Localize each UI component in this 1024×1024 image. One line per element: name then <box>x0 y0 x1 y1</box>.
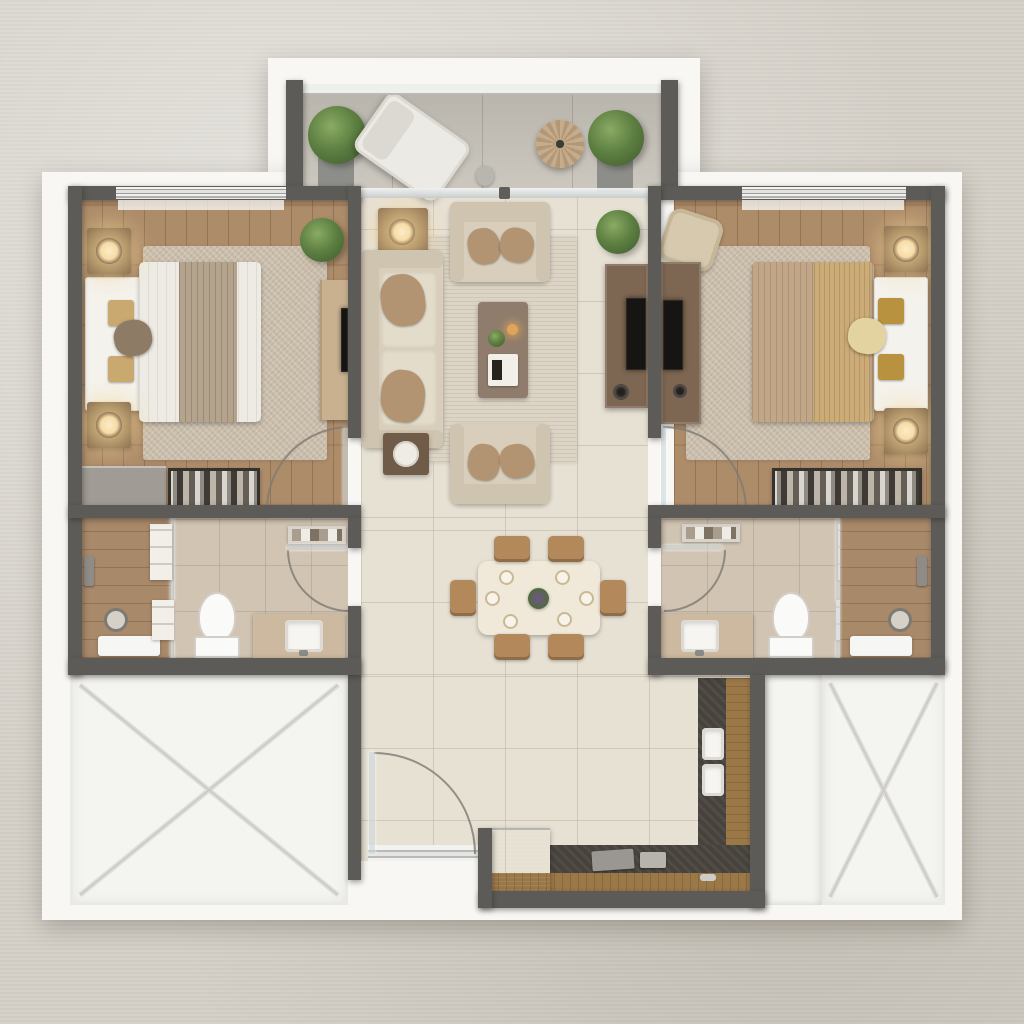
bedroom-right-lamp-top <box>893 236 919 262</box>
living-armchair-bottom <box>450 424 550 504</box>
bathroom-right-glass-partition <box>836 518 840 658</box>
bedroom-left-lamp-bottom <box>96 412 122 438</box>
void-area-left <box>70 675 348 905</box>
sofa-arm-top <box>361 250 443 268</box>
kitchen-appliance <box>492 828 550 894</box>
living-tv <box>626 298 646 370</box>
place-setting-1 <box>499 570 514 585</box>
wall-bath-left-bottom <box>68 658 361 675</box>
void-cross-right <box>822 675 945 905</box>
balcony-wall-right <box>661 80 678 192</box>
bedroom-right-nightstand-bottom <box>884 408 928 454</box>
armchair-top-pillow-2 <box>497 225 537 265</box>
place-setting-3 <box>485 591 500 606</box>
bathroom-right-shower-control <box>888 608 912 632</box>
sliding-door-handle <box>499 187 510 199</box>
armchair-bottom-arm-left <box>450 424 464 504</box>
armchair-top-arm-right <box>536 202 550 282</box>
bedroom-left-dresser <box>82 466 166 508</box>
living-table-lamp <box>389 219 415 245</box>
wall-kitchen-left-stub <box>478 828 492 908</box>
bathroom-left-faucet <box>299 650 308 656</box>
wall-bedroom-right-inner <box>648 186 661 438</box>
balcony-round-table <box>536 120 584 168</box>
bathroom-left-sink <box>285 620 323 652</box>
entry-outside-patch <box>361 861 478 920</box>
wall-bedroom-left-bottom <box>68 505 361 518</box>
bedroom-right-speaker <box>673 384 687 398</box>
wall-bedroom-right-bottom <box>648 505 945 518</box>
bedroom-left-lamp-top <box>96 238 122 264</box>
bathroom-left-towels <box>292 529 342 541</box>
place-setting-2 <box>555 570 570 585</box>
armchair-top-arm-left <box>450 202 464 282</box>
place-setting-6 <box>557 612 572 627</box>
living-side-table-bottom <box>383 433 429 475</box>
wall-kitchen-right <box>750 675 765 908</box>
armchair-bottom-pillow-2 <box>497 441 537 481</box>
bathroom-right-shower-tray <box>850 636 912 656</box>
dining-chair-bottom-1 <box>494 634 530 660</box>
white-strip-right <box>765 675 822 905</box>
dining-chair-right <box>600 580 626 616</box>
balcony-wall-left <box>286 80 303 192</box>
bathroom-right-shower-head <box>917 556 927 586</box>
bedroom-left-door-leaf <box>343 428 348 510</box>
coffee-table-candle <box>507 324 518 335</box>
dining-chair-top-2 <box>548 536 584 562</box>
bathroom-left-toilet-tank <box>194 636 240 658</box>
dining-chair-top-1 <box>494 536 530 562</box>
bathroom-right-towels <box>686 527 736 539</box>
bathroom-left-door-leaf <box>287 545 347 550</box>
dining-chair-bottom-2 <box>548 634 584 660</box>
bathroom-left-towel-shelf <box>288 526 346 544</box>
bedroom-left-curtain <box>118 200 284 210</box>
wall-bath-right-bottom <box>648 658 945 675</box>
kitchen-basin-2 <box>702 764 724 796</box>
living-armchair-top <box>450 202 550 282</box>
armchair-top-pillow-1 <box>465 225 503 266</box>
living-speaker <box>613 384 629 400</box>
side-table-tray <box>393 441 419 467</box>
wall-bath-right-jamb <box>648 518 661 548</box>
bedroom-left-nightstand-bottom <box>87 402 131 448</box>
armchair-bottom-arm-right <box>536 424 550 504</box>
living-coffee-table <box>478 302 528 398</box>
bedroom-right-curtain <box>742 200 904 210</box>
entry-door-leaf <box>369 752 375 854</box>
kitchen-dish <box>700 874 716 881</box>
tray-item <box>492 360 502 380</box>
bathroom-right-vanity <box>661 614 753 658</box>
wall-bath-left-jamb <box>348 518 361 548</box>
bedroom-right-tv <box>663 300 683 370</box>
bathroom-left-shower-control <box>104 608 128 632</box>
void-area-right <box>822 675 945 905</box>
living-plant <box>596 210 640 254</box>
bathroom-right-door-leaf <box>662 545 722 550</box>
coffee-table-plant <box>488 330 505 347</box>
armchair-bottom-pillow-1 <box>466 442 503 482</box>
place-setting-5 <box>503 614 518 629</box>
balcony-railing <box>303 84 661 95</box>
bedroom-left-nightstand-top <box>87 228 131 274</box>
wall-kitchen-bottom <box>478 891 765 908</box>
floor-plan-stage <box>0 0 1024 1024</box>
bedroom-left-window <box>116 187 286 199</box>
bedroom-right-door-leaf <box>661 428 666 510</box>
wall-bedroom-left-inner <box>348 186 361 438</box>
armchair-top-back <box>450 202 550 222</box>
balcony-decor-item <box>476 166 494 186</box>
bathroom-right-toilet-tank <box>768 636 814 658</box>
bathroom-left-shower-tray <box>98 636 160 656</box>
balcony-plant-right <box>588 110 644 166</box>
bedroom-left-plant <box>300 218 344 262</box>
bathroom-left-shower-head <box>84 556 94 586</box>
dining-chair-left <box>450 580 476 616</box>
bed-left-runner <box>179 262 237 422</box>
bedroom-right-tv-console <box>661 262 701 424</box>
bed-right-decor-block-1 <box>878 298 904 324</box>
bathroom-left-vanity <box>253 614 345 658</box>
living-sofa <box>361 250 443 448</box>
bathroom-right-toilet-bowl <box>772 592 810 642</box>
bathroom-right-sink <box>681 620 719 652</box>
bathroom-right-faucet <box>695 650 704 656</box>
sofa-back <box>361 250 379 448</box>
place-setting-4 <box>579 591 594 606</box>
wall-left <box>68 186 82 675</box>
wall-hallway-left <box>348 606 361 880</box>
armchair-bottom-back <box>450 484 550 504</box>
bedroom-right-nightstand-top <box>884 226 928 272</box>
kitchen-tray-2 <box>640 852 666 868</box>
dining-centerpiece <box>528 588 549 609</box>
bed-left-decor-block-2 <box>108 356 134 382</box>
living-tv-console <box>605 264 648 408</box>
kitchen-tray-1 <box>591 849 634 872</box>
bedroom-left-wall-tv <box>341 308 348 372</box>
wall-right <box>931 186 945 672</box>
bathroom-left-shelves <box>150 524 172 580</box>
kitchen-basin-1 <box>702 728 724 760</box>
coffee-table-tray <box>488 354 518 386</box>
bedroom-right-window <box>742 187 906 199</box>
bathroom-left-toilet-bowl <box>198 592 236 642</box>
bathroom-right-towel-shelf <box>682 524 740 542</box>
void-cross-left <box>70 675 348 905</box>
bedroom-right-lamp-bottom <box>893 418 919 444</box>
bed-right-decor-block-2 <box>878 354 904 380</box>
balcony-plant-left <box>308 106 366 164</box>
bathroom-left-cabinet <box>152 600 174 640</box>
